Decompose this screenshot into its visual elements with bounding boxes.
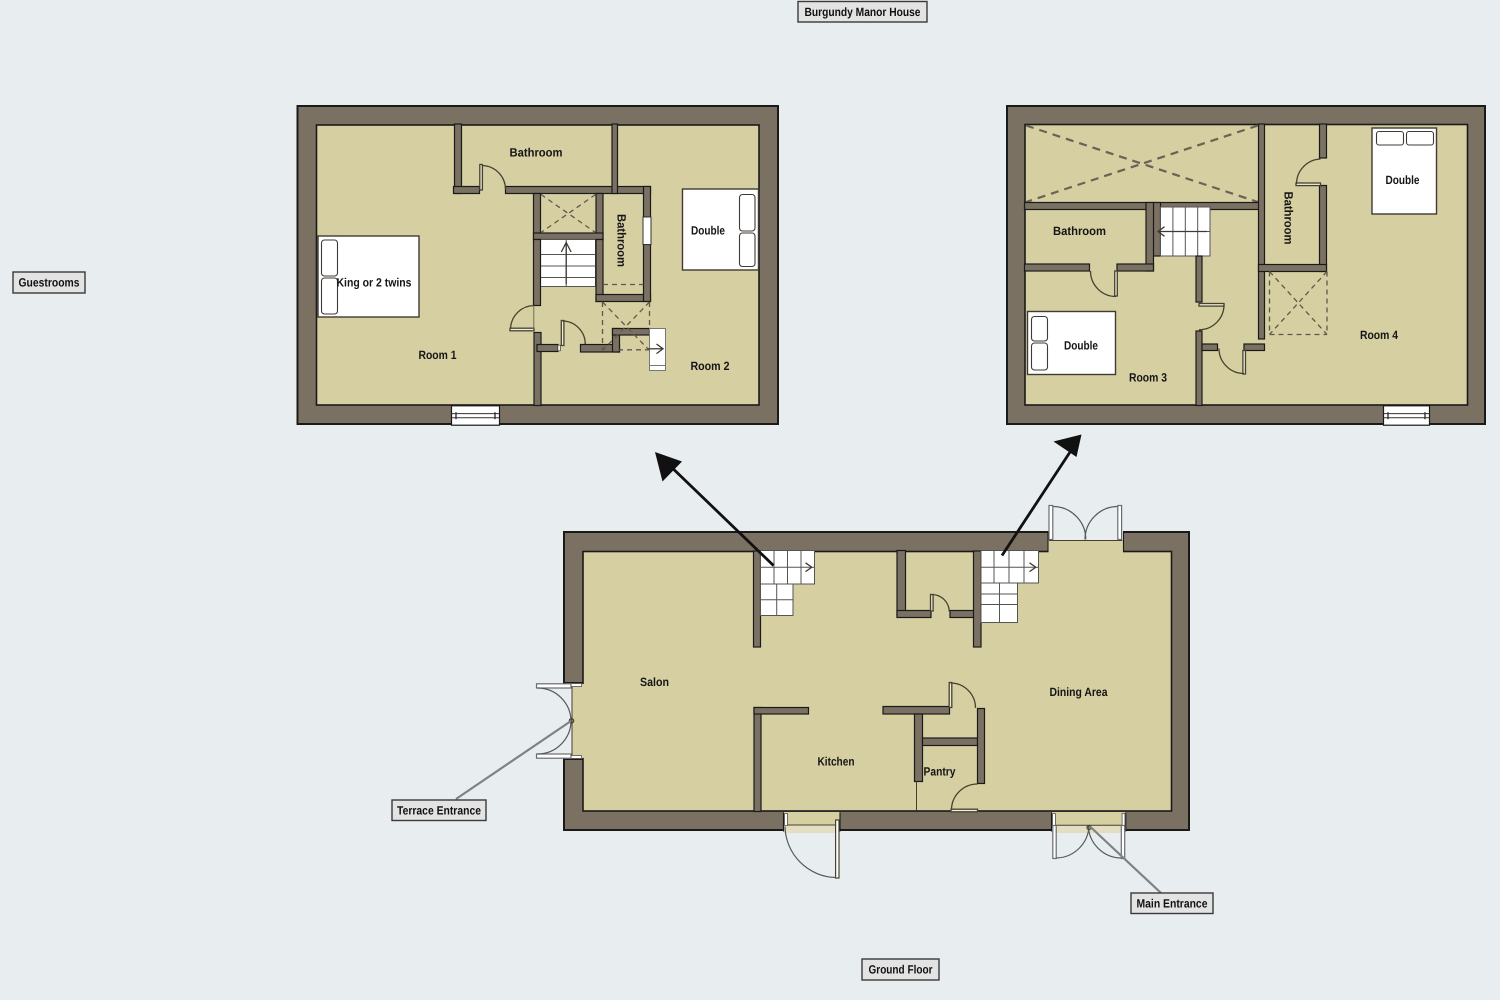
svg-text:King or 2 twins: King or 2 twins xyxy=(337,276,412,290)
svg-text:Burgundy Manor House: Burgundy Manor House xyxy=(805,5,921,19)
svg-text:Salon: Salon xyxy=(640,675,669,689)
svg-text:Double: Double xyxy=(691,224,725,238)
svg-text:Room 4: Room 4 xyxy=(1360,328,1398,342)
svg-text:Bathroom: Bathroom xyxy=(1053,224,1106,238)
svg-text:Pantry: Pantry xyxy=(924,765,956,779)
svg-text:Bathroom: Bathroom xyxy=(1282,192,1296,245)
svg-text:Bathroom: Bathroom xyxy=(615,214,629,267)
svg-text:Ground Floor: Ground Floor xyxy=(869,963,933,977)
svg-text:Main Entrance: Main Entrance xyxy=(1137,897,1208,911)
svg-text:Double: Double xyxy=(1064,339,1098,353)
svg-text:Kitchen: Kitchen xyxy=(818,755,855,769)
svg-text:Room 1: Room 1 xyxy=(419,348,457,362)
svg-text:Room 2: Room 2 xyxy=(691,359,730,373)
svg-text:Bathroom: Bathroom xyxy=(510,146,563,160)
svg-text:Dining Area: Dining Area xyxy=(1050,685,1108,699)
svg-text:Guestrooms: Guestrooms xyxy=(19,276,80,290)
svg-text:Room 3: Room 3 xyxy=(1129,371,1167,385)
svg-text:Double: Double xyxy=(1386,173,1420,187)
svg-text:Terrace Entrance: Terrace Entrance xyxy=(397,804,481,818)
